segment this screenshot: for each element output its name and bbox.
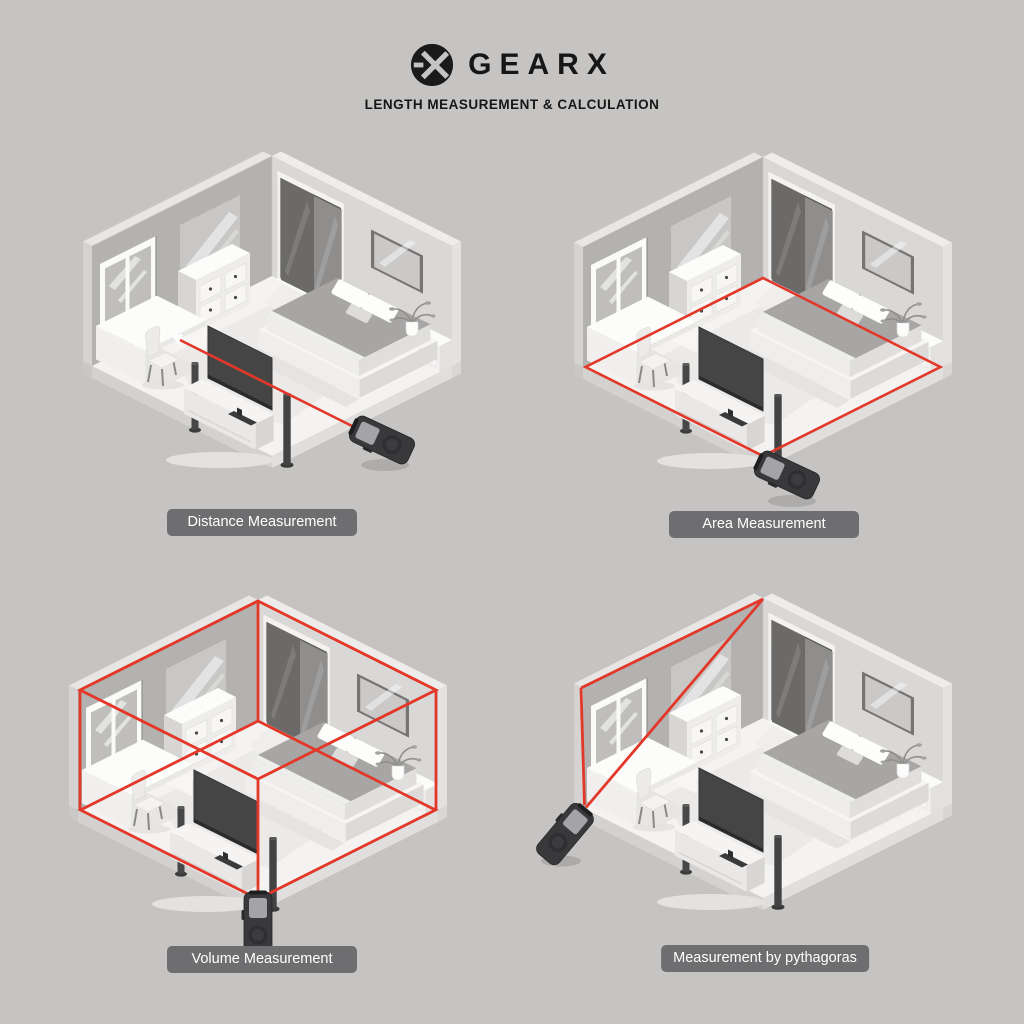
caption-volume: Volume Measurement <box>167 946 357 973</box>
brand-title: GEARX <box>468 48 615 82</box>
caption-distance: Distance Measurement <box>167 509 357 536</box>
page-subtitle: LENGTH MEASUREMENT & CALCULATION <box>365 97 660 112</box>
header: GEARX LENGTH MEASUREMENT & CALCULATION <box>0 42 1024 112</box>
panel-area-illustration <box>543 117 983 527</box>
brand-row: GEARX <box>409 42 615 88</box>
caption-area: Area Measurement <box>669 511 859 538</box>
infographic-page: GEARX LENGTH MEASUREMENT & CALCULATION D… <box>0 0 1024 1024</box>
panel-pythagoras-illustration <box>543 558 983 968</box>
caption-pythagoras: Measurement by pythagoras <box>661 945 869 972</box>
panel-volume-illustration <box>38 560 478 970</box>
panel-distance-illustration <box>52 116 492 526</box>
gearx-logo-icon <box>409 42 455 88</box>
